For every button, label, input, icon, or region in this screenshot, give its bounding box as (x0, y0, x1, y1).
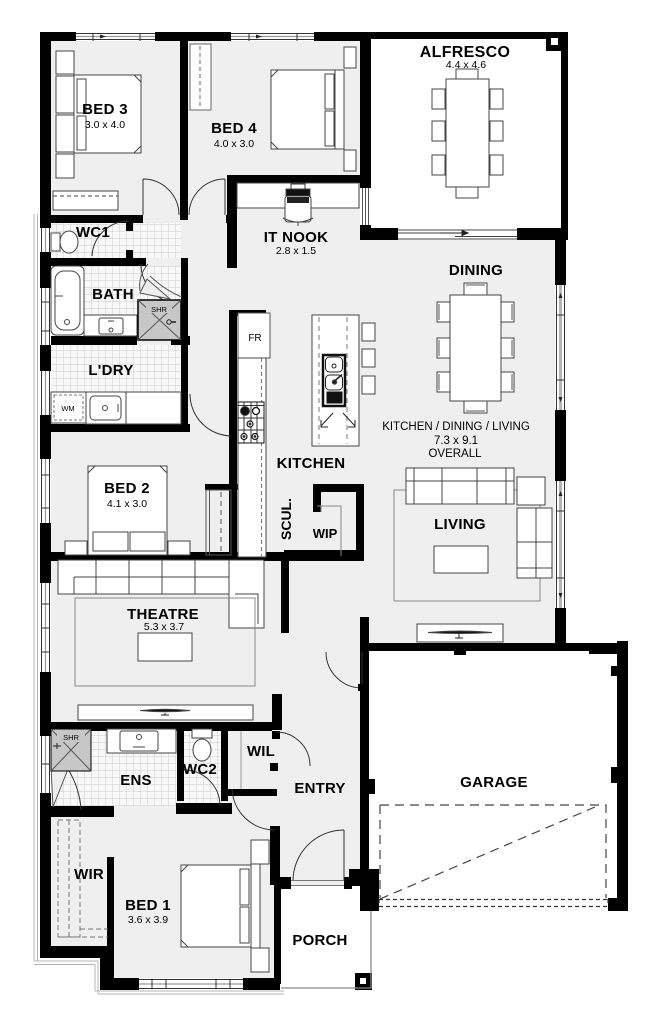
svg-text:OVERALL: OVERALL (428, 448, 482, 460)
svg-text:2.8 x 1.5: 2.8 x 1.5 (276, 245, 316, 257)
svg-text:4.4 x 4.6: 4.4 x 4.6 (446, 59, 486, 71)
svg-text:5.3 x 3.7: 5.3 x 3.7 (144, 621, 184, 633)
svg-text:LIVING: LIVING (434, 516, 486, 533)
svg-text:WC2: WC2 (183, 761, 217, 778)
svg-text:KITCHEN: KITCHEN (277, 455, 346, 472)
svg-text:BED 2: BED 2 (104, 480, 150, 497)
svg-text:WIL: WIL (247, 743, 275, 760)
svg-text:FR: FR (248, 333, 261, 344)
svg-text:SHR: SHR (63, 733, 79, 742)
svg-text:3.0 x 4.0: 3.0 x 4.0 (85, 119, 125, 131)
svg-text:DINING: DINING (449, 262, 503, 279)
svg-text:BED 3: BED 3 (82, 101, 128, 118)
svg-text:KITCHEN / DINING / LIVING: KITCHEN / DINING / LIVING (382, 421, 530, 433)
svg-text:WIR: WIR (74, 866, 104, 883)
svg-text:PORCH: PORCH (292, 932, 347, 949)
svg-text:BED 1: BED 1 (125, 897, 171, 914)
svg-text:WIP: WIP (313, 526, 338, 541)
svg-text:ENTRY: ENTRY (294, 780, 345, 797)
svg-text:7.3 x 9.1: 7.3 x 9.1 (434, 435, 478, 447)
svg-text:4.0 x 3.0: 4.0 x 3.0 (214, 138, 254, 150)
svg-text:ENS: ENS (120, 772, 151, 789)
svg-text:GARAGE: GARAGE (460, 774, 528, 791)
svg-text:WC1: WC1 (76, 224, 110, 241)
svg-text:WM: WM (61, 404, 74, 413)
svg-text:BED 4: BED 4 (211, 120, 257, 137)
svg-text:3.6 x 3.9: 3.6 x 3.9 (128, 914, 168, 926)
svg-text:SCUL.: SCUL. (278, 498, 294, 540)
svg-text:IT NOOK: IT NOOK (264, 229, 329, 246)
svg-text:L'DRY: L'DRY (88, 362, 133, 379)
svg-text:BATH: BATH (92, 286, 134, 303)
svg-text:SHR: SHR (151, 305, 167, 314)
svg-text:4.1 x 3.0: 4.1 x 3.0 (107, 498, 147, 510)
